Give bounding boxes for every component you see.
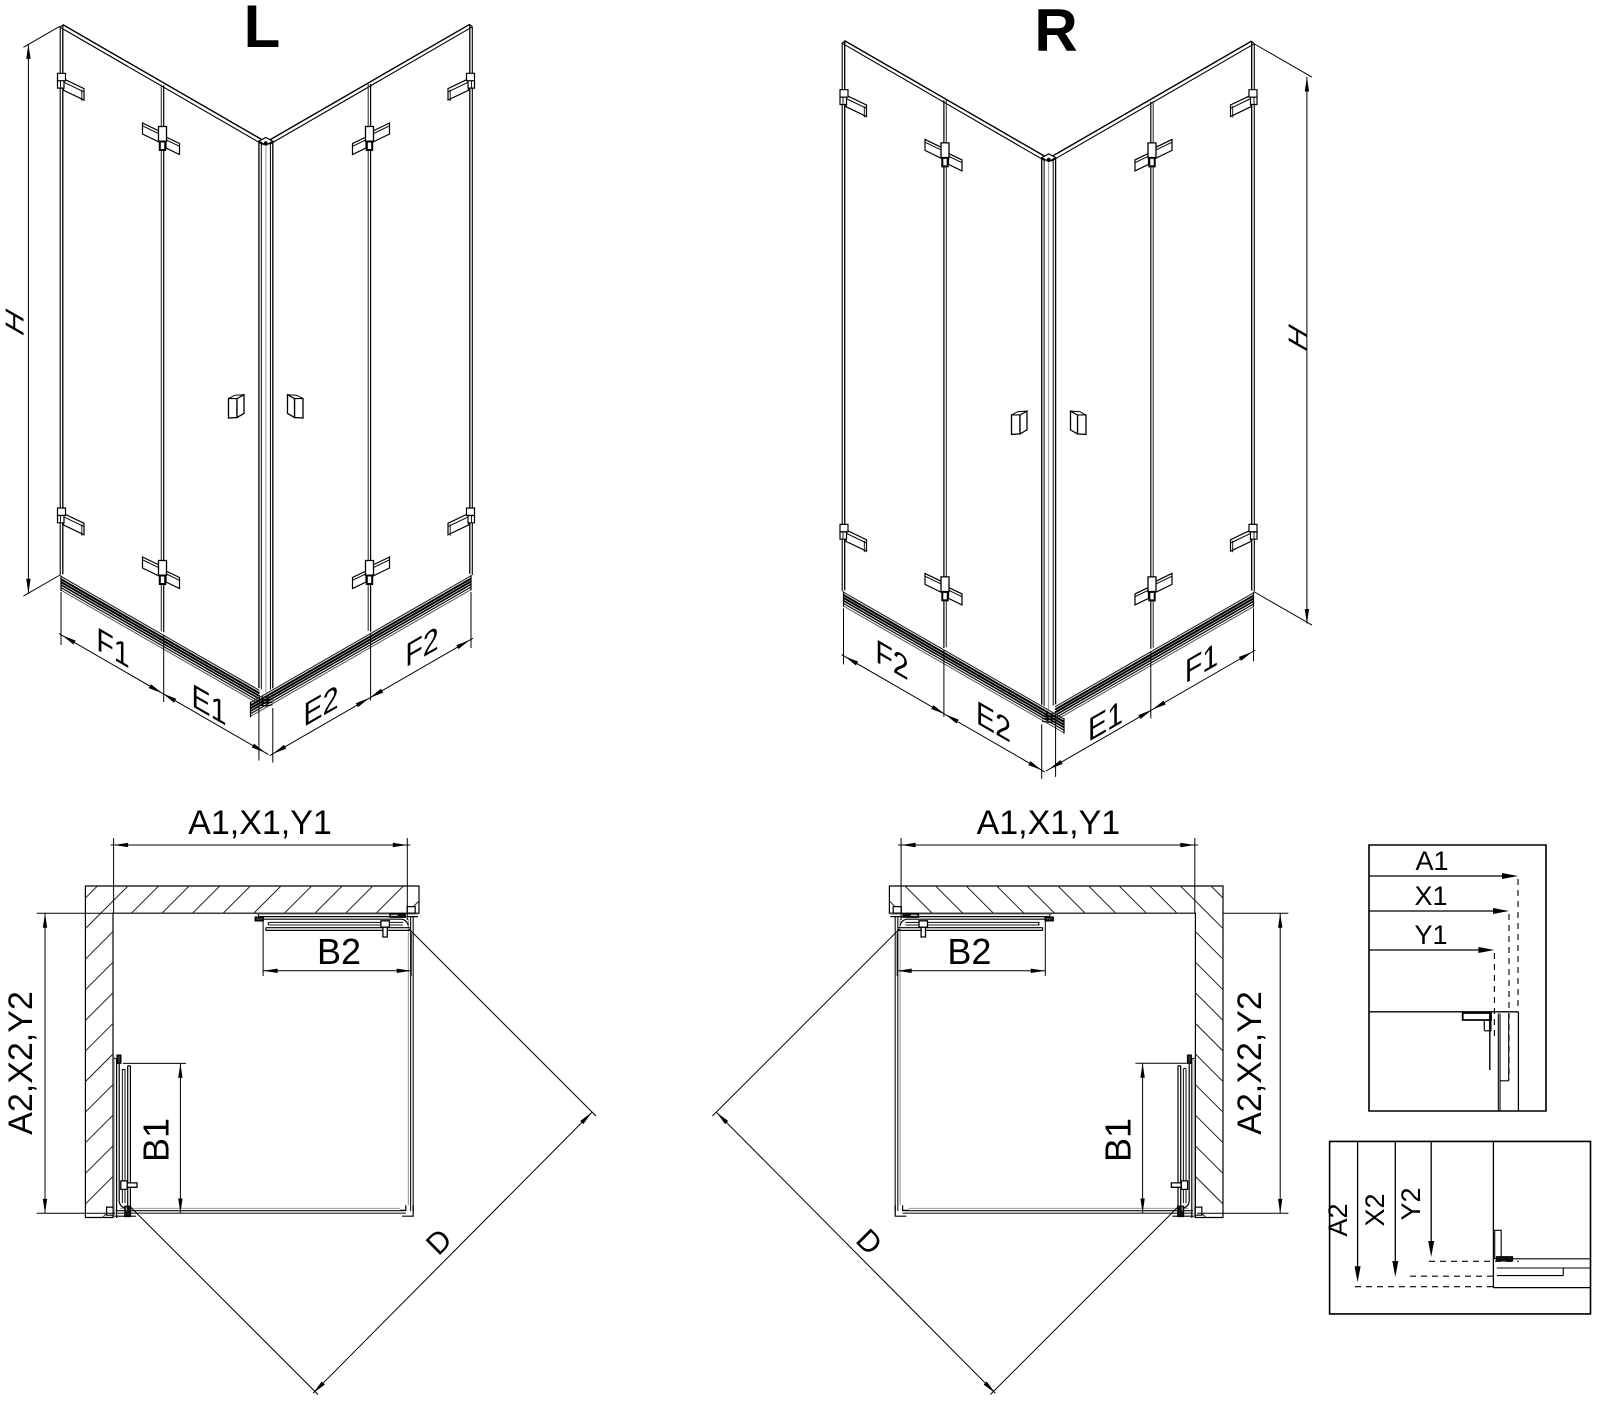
svg-text:B2: B2 <box>317 931 361 972</box>
svg-text:A1,X1,Y1: A1,X1,Y1 <box>977 804 1121 842</box>
svg-text:A2,X2,Y2: A2,X2,Y2 <box>2 991 40 1135</box>
svg-text:L: L <box>244 0 281 60</box>
svg-text:R: R <box>1034 0 1077 64</box>
svg-text:B1: B1 <box>136 1118 177 1162</box>
svg-text:A1: A1 <box>1415 846 1448 876</box>
svg-text:X2: X2 <box>1360 1193 1390 1226</box>
svg-text:A2: A2 <box>1323 1203 1353 1236</box>
svg-text:A2,X2,Y2: A2,X2,Y2 <box>1231 991 1269 1135</box>
svg-text:Y1: Y1 <box>1414 920 1447 950</box>
svg-text:X1: X1 <box>1414 881 1447 911</box>
svg-text:A1,X1,Y1: A1,X1,Y1 <box>188 804 332 842</box>
svg-text:B2: B2 <box>947 931 991 972</box>
svg-text:Y2: Y2 <box>1396 1187 1426 1220</box>
svg-text:B1: B1 <box>1098 1118 1139 1162</box>
